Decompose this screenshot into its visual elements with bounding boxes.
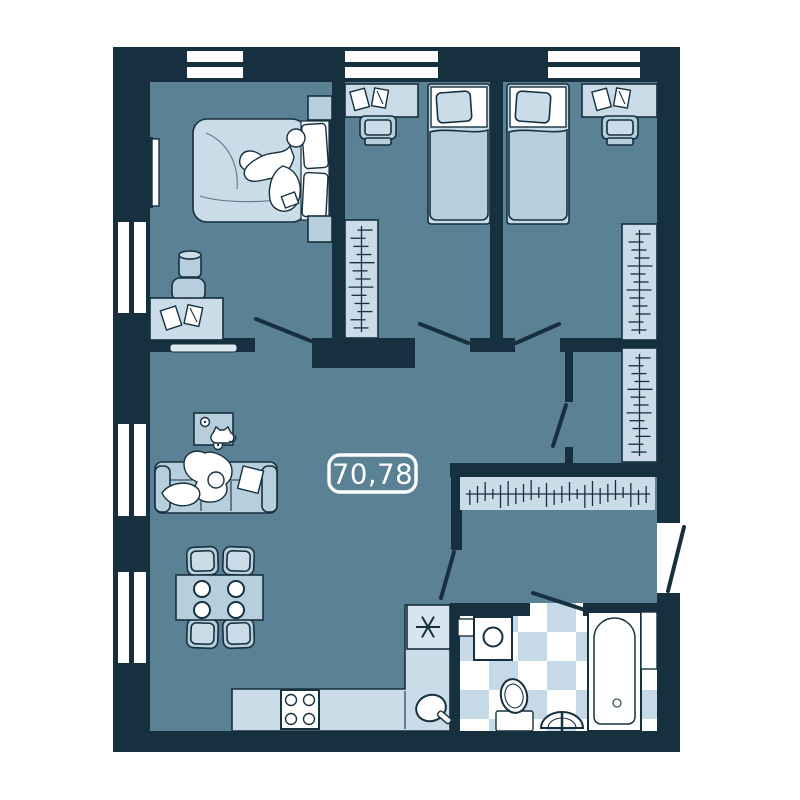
- plate: [228, 581, 244, 597]
- wall-right-lower: [657, 593, 680, 752]
- sofa-pillow: [238, 466, 264, 493]
- wall-bedroom1-right: [332, 82, 345, 352]
- burner: [286, 714, 297, 725]
- nightstand: [308, 96, 332, 120]
- wardrobe-closet: [622, 348, 657, 462]
- rug: [170, 344, 237, 352]
- blanket: [509, 130, 567, 220]
- dining-chair: [186, 618, 218, 648]
- dining-chair: [223, 618, 255, 648]
- dining-table: [176, 575, 263, 620]
- wall-bedroom2-3: [490, 82, 503, 352]
- double-bed: [193, 118, 333, 222]
- wall-bath-top-left: [450, 603, 530, 616]
- pillow: [515, 91, 551, 123]
- pillow: [302, 172, 328, 217]
- stove: [281, 690, 319, 729]
- single-bed: [428, 84, 490, 224]
- nightstand: [308, 216, 332, 242]
- headboard: [329, 118, 333, 222]
- door-entry: [668, 527, 684, 591]
- tv: [152, 139, 159, 206]
- bath-shelf: [641, 612, 657, 669]
- burner: [304, 695, 315, 706]
- wall-hall-top: [450, 463, 657, 477]
- plate: [228, 602, 244, 618]
- dining-chair: [187, 546, 219, 575]
- blanket: [430, 130, 488, 220]
- dining-chair: [223, 546, 255, 575]
- closet: [622, 348, 657, 462]
- pillow: [301, 123, 328, 169]
- burner: [304, 714, 315, 725]
- wardrobe-bedroom2: [345, 220, 378, 338]
- wall-closet-stub: [565, 447, 573, 463]
- coat-rack: [460, 477, 655, 510]
- area-label-value: 70,78: [332, 459, 413, 491]
- wall-pier: [312, 338, 415, 368]
- plate: [194, 581, 210, 597]
- floor-plan-canvas: 70,78: [0, 0, 800, 800]
- area-label: 70,78: [329, 455, 416, 492]
- washing-machine: [474, 617, 512, 660]
- bathtub: [588, 612, 641, 731]
- single-bed: [507, 84, 569, 224]
- bath-cabinet: [458, 619, 474, 636]
- wall-right-upper: [657, 47, 680, 523]
- wall-closet-left: [565, 348, 573, 402]
- floor-plan-svg: 70,78: [0, 0, 800, 800]
- coffee-table: [194, 413, 236, 450]
- armrest: [262, 466, 277, 512]
- burner: [286, 695, 297, 706]
- wall-bottom: [113, 731, 680, 752]
- plate: [194, 602, 210, 618]
- wardrobe-bedroom3: [622, 224, 657, 340]
- pillow: [436, 91, 472, 123]
- wall-between-doors: [470, 338, 515, 352]
- hallway: [460, 477, 655, 510]
- fridge: [407, 605, 450, 649]
